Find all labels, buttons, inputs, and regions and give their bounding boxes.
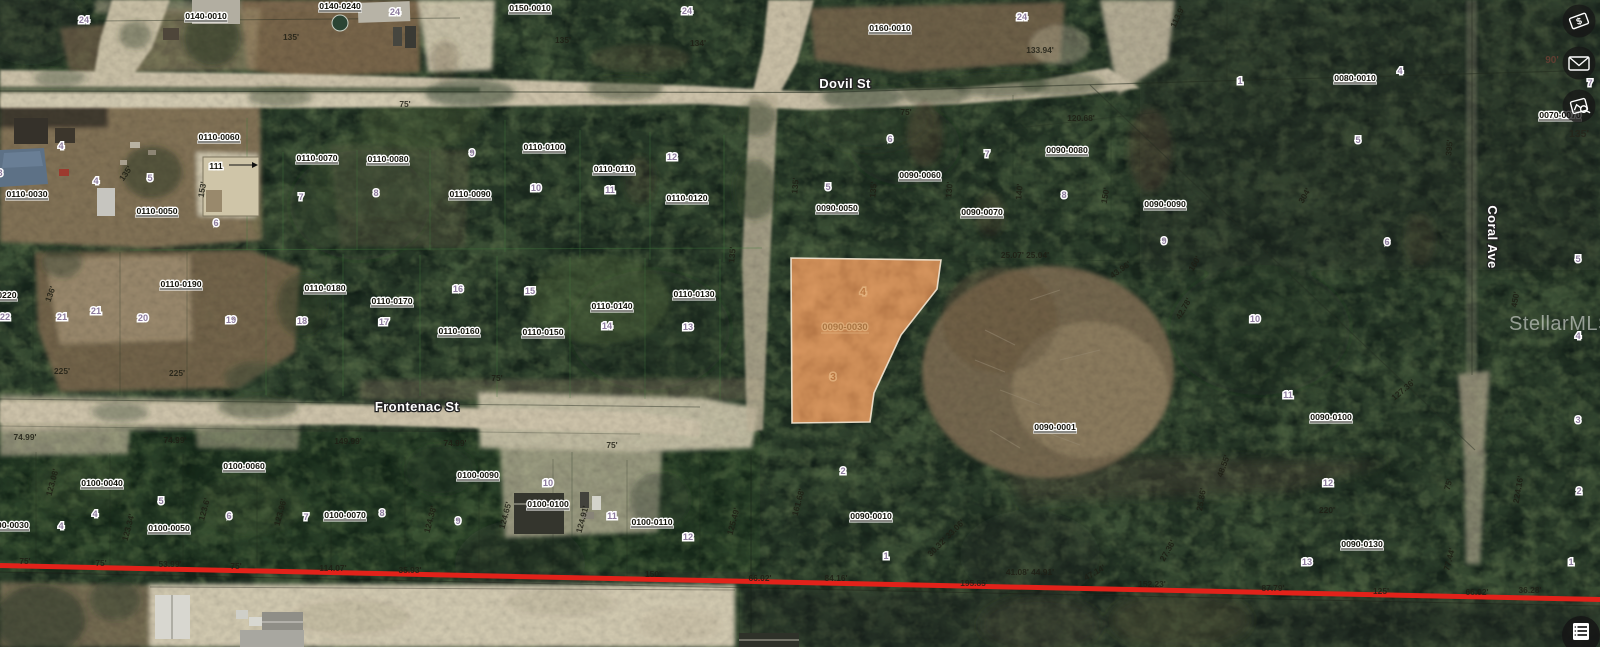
svg-text:225': 225' bbox=[54, 366, 70, 376]
svg-text:4: 4 bbox=[92, 509, 98, 519]
svg-text:0100-0030: 0100-0030 bbox=[0, 520, 29, 530]
svg-text:19: 19 bbox=[226, 315, 236, 325]
svg-text:75': 75' bbox=[95, 558, 106, 568]
svg-text:13: 13 bbox=[1302, 557, 1312, 567]
svg-text:5: 5 bbox=[825, 182, 830, 192]
svg-text:0100-0100: 0100-0100 bbox=[527, 499, 569, 509]
svg-text:16: 16 bbox=[453, 284, 463, 294]
svg-text:17: 17 bbox=[379, 317, 389, 327]
svg-text:5: 5 bbox=[1575, 254, 1580, 264]
svg-text:7: 7 bbox=[984, 149, 989, 159]
svg-text:130': 130' bbox=[943, 181, 954, 198]
svg-text:0090-0030: 0090-0030 bbox=[822, 322, 867, 333]
svg-text:135': 135' bbox=[1569, 128, 1589, 140]
svg-text:2: 2 bbox=[840, 466, 845, 476]
svg-text:225': 225' bbox=[169, 368, 185, 378]
svg-text:0140-0240: 0140-0240 bbox=[319, 1, 361, 11]
svg-text:0110-0140: 0110-0140 bbox=[591, 301, 632, 311]
svg-text:0110-0170: 0110-0170 bbox=[371, 296, 412, 306]
svg-text:0110-0130: 0110-0130 bbox=[673, 289, 714, 299]
svg-text:9: 9 bbox=[469, 148, 474, 158]
svg-text:152.23': 152.23' bbox=[1138, 579, 1166, 589]
svg-text:22: 22 bbox=[0, 312, 10, 322]
svg-text:5: 5 bbox=[1355, 135, 1360, 145]
svg-text:0110-0080: 0110-0080 bbox=[367, 154, 408, 164]
svg-text:15: 15 bbox=[525, 286, 535, 296]
svg-text:0100-0110: 0100-0110 bbox=[631, 517, 672, 527]
svg-text:7: 7 bbox=[298, 192, 303, 202]
svg-text:0080-0010: 0080-0010 bbox=[1334, 73, 1376, 83]
svg-text:13: 13 bbox=[683, 322, 693, 332]
svg-text:4: 4 bbox=[58, 141, 64, 151]
svg-text:4: 4 bbox=[58, 521, 64, 531]
svg-text:0150-0010: 0150-0010 bbox=[509, 3, 551, 13]
svg-text:0090-0130: 0090-0130 bbox=[1341, 539, 1383, 549]
svg-text:3: 3 bbox=[1575, 415, 1580, 425]
svg-text:3: 3 bbox=[830, 372, 836, 383]
svg-text:8: 8 bbox=[379, 508, 384, 518]
svg-text:1: 1 bbox=[1237, 76, 1242, 86]
svg-text:Dovil St: Dovil St bbox=[819, 76, 871, 91]
svg-text:StellarMLS: StellarMLS bbox=[1509, 313, 1600, 335]
svg-text:0090-0001: 0090-0001 bbox=[1034, 422, 1076, 432]
svg-text:21: 21 bbox=[91, 306, 101, 316]
svg-text:1: 1 bbox=[1568, 557, 1573, 567]
svg-text:7: 7 bbox=[1587, 78, 1592, 88]
svg-text:0090-0010: 0090-0010 bbox=[850, 511, 892, 521]
svg-text:74.99': 74.99' bbox=[444, 438, 467, 448]
svg-text:Coral Ave: Coral Ave bbox=[1485, 205, 1500, 268]
svg-text:0090-0080: 0090-0080 bbox=[1046, 145, 1088, 155]
svg-text:0100-0090: 0100-0090 bbox=[457, 470, 499, 480]
svg-text:Frontenac St: Frontenac St bbox=[375, 399, 460, 414]
svg-text:133.94': 133.94' bbox=[1026, 45, 1054, 55]
svg-text:0090-0070: 0090-0070 bbox=[961, 207, 1003, 217]
svg-text:12: 12 bbox=[1323, 478, 1333, 488]
svg-text:53.99': 53.99' bbox=[159, 559, 182, 569]
svg-text:6: 6 bbox=[887, 134, 892, 144]
svg-text:149.99': 149.99' bbox=[334, 436, 362, 446]
svg-text:75': 75' bbox=[606, 440, 617, 450]
svg-text:0110-0190: 0110-0190 bbox=[160, 279, 201, 289]
svg-text:21: 21 bbox=[57, 312, 67, 322]
svg-text:87.79': 87.79' bbox=[1262, 583, 1285, 593]
svg-text:14: 14 bbox=[602, 321, 613, 331]
svg-text:5: 5 bbox=[147, 173, 152, 183]
svg-text:0110-0090: 0110-0090 bbox=[449, 189, 490, 199]
svg-text:10: 10 bbox=[543, 478, 553, 488]
svg-text:12: 12 bbox=[667, 152, 677, 162]
svg-text:0110-0030: 0110-0030 bbox=[6, 189, 47, 199]
svg-text:195.85': 195.85' bbox=[960, 578, 988, 588]
svg-text:2: 2 bbox=[1576, 486, 1581, 496]
svg-text:220': 220' bbox=[1319, 505, 1335, 515]
svg-text:75': 75' bbox=[399, 99, 410, 109]
svg-text:25.07' 25.04': 25.07' 25.04' bbox=[1001, 250, 1049, 260]
svg-text:0100-0070: 0100-0070 bbox=[324, 510, 366, 520]
svg-text:12: 12 bbox=[683, 532, 693, 542]
svg-text:0100-0060: 0100-0060 bbox=[223, 461, 265, 471]
svg-text:11: 11 bbox=[605, 185, 615, 195]
svg-text:135': 135' bbox=[867, 181, 878, 198]
svg-text:0110-0070: 0110-0070 bbox=[296, 153, 337, 163]
svg-text:11: 11 bbox=[607, 511, 617, 521]
svg-text:0090-0100: 0090-0100 bbox=[1310, 412, 1352, 422]
svg-text:0090-0060: 0090-0060 bbox=[899, 170, 941, 180]
svg-text:125': 125' bbox=[1373, 586, 1389, 596]
svg-text:90': 90' bbox=[1545, 55, 1559, 66]
svg-text:4: 4 bbox=[860, 287, 866, 298]
svg-text:120.68': 120.68' bbox=[1067, 113, 1095, 123]
svg-text:0110-0050: 0110-0050 bbox=[136, 206, 177, 216]
svg-text:3: 3 bbox=[0, 168, 3, 178]
svg-text:0100-0040: 0100-0040 bbox=[81, 478, 123, 488]
svg-text:35.93': 35.93' bbox=[399, 565, 422, 575]
svg-text:0110-0180: 0110-0180 bbox=[304, 283, 345, 293]
svg-text:66.02': 66.02' bbox=[749, 573, 772, 583]
svg-text:18: 18 bbox=[297, 316, 307, 326]
svg-text:66.02': 66.02' bbox=[1466, 587, 1489, 597]
svg-text:9: 9 bbox=[1161, 236, 1166, 246]
svg-text:9: 9 bbox=[455, 516, 460, 526]
svg-text:135': 135' bbox=[789, 177, 800, 194]
svg-text:0110-0120: 0110-0120 bbox=[666, 193, 707, 203]
svg-text:7: 7 bbox=[303, 512, 308, 522]
svg-text:0110-0100: 0110-0100 bbox=[523, 142, 564, 152]
svg-text:10: 10 bbox=[531, 183, 541, 193]
svg-text:10: 10 bbox=[1250, 314, 1260, 324]
svg-text:0090-0050: 0090-0050 bbox=[816, 203, 858, 213]
svg-text:4: 4 bbox=[93, 176, 99, 186]
svg-text:8: 8 bbox=[373, 188, 378, 198]
svg-text:1: 1 bbox=[883, 551, 888, 561]
svg-text:0110-0150: 0110-0150 bbox=[522, 327, 563, 337]
svg-text:135': 135' bbox=[283, 32, 299, 42]
svg-text:36.28': 36.28' bbox=[1519, 585, 1542, 595]
svg-text:135': 135' bbox=[555, 35, 571, 45]
svg-text:74.99': 74.99' bbox=[14, 432, 37, 442]
svg-text:0140-0010: 0140-0010 bbox=[185, 11, 227, 21]
svg-text:0160-0010: 0160-0010 bbox=[869, 23, 911, 33]
svg-text:6: 6 bbox=[1384, 237, 1389, 247]
svg-text:20: 20 bbox=[138, 313, 148, 323]
svg-text:8: 8 bbox=[1061, 190, 1066, 200]
svg-text:0110-0060: 0110-0060 bbox=[198, 132, 239, 142]
svg-text:84.16': 84.16' bbox=[825, 573, 848, 583]
svg-text:6: 6 bbox=[226, 511, 231, 521]
svg-text:24: 24 bbox=[682, 6, 693, 16]
svg-text:134': 134' bbox=[690, 38, 706, 48]
svg-text:0090-0090: 0090-0090 bbox=[1144, 199, 1186, 209]
svg-text:75': 75' bbox=[900, 107, 911, 117]
svg-text:24: 24 bbox=[1017, 12, 1028, 22]
svg-text:41.08' 44.91': 41.08' 44.91' bbox=[1006, 567, 1054, 577]
svg-text:5: 5 bbox=[158, 496, 163, 506]
svg-text:395': 395' bbox=[1443, 139, 1454, 156]
svg-text:4: 4 bbox=[1397, 66, 1403, 76]
svg-text:111: 111 bbox=[209, 161, 223, 171]
svg-text:75': 75' bbox=[19, 556, 30, 566]
svg-text:24: 24 bbox=[79, 15, 90, 25]
svg-text:24: 24 bbox=[390, 7, 401, 17]
svg-text:6: 6 bbox=[213, 218, 218, 228]
svg-text:11: 11 bbox=[1283, 390, 1293, 400]
svg-text:114.07': 114.07' bbox=[319, 563, 346, 573]
svg-text:140': 140' bbox=[1013, 183, 1024, 200]
svg-text:0110-0220: 0110-0220 bbox=[0, 290, 17, 300]
svg-text:150': 150' bbox=[645, 569, 661, 579]
svg-text:0100-0050: 0100-0050 bbox=[148, 523, 190, 533]
svg-text:75': 75' bbox=[491, 373, 502, 383]
svg-text:0110-0110: 0110-0110 bbox=[594, 164, 635, 174]
svg-text:0110-0160: 0110-0160 bbox=[438, 326, 479, 336]
svg-text:74.99': 74.99' bbox=[164, 435, 187, 445]
svg-text:75': 75' bbox=[230, 561, 241, 571]
svg-text:135': 135' bbox=[726, 246, 737, 263]
